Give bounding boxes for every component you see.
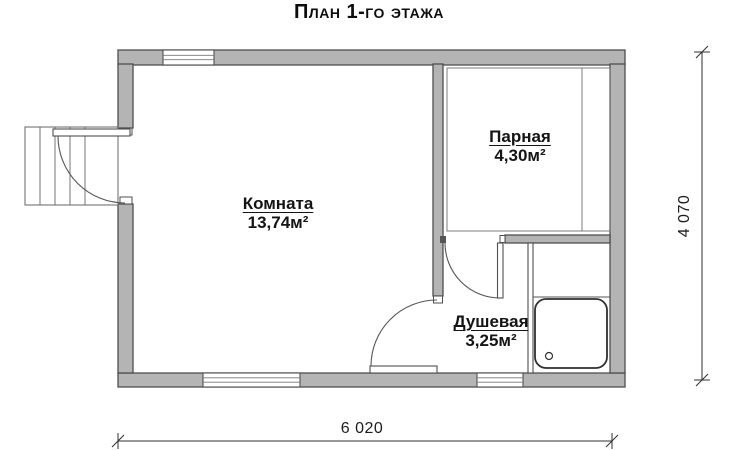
window-bottom-room bbox=[203, 373, 300, 387]
porch-steps bbox=[25, 127, 118, 205]
right-wall bbox=[610, 64, 625, 373]
shower-partition bbox=[528, 243, 533, 373]
window-top bbox=[163, 50, 214, 65]
dimension-width-label: 6 020 bbox=[262, 420, 462, 438]
door-steam-to-shower bbox=[445, 243, 503, 298]
room-area-komnata: 13,74м² bbox=[178, 213, 378, 233]
door-arc bbox=[445, 243, 500, 298]
entrance-door-leaf bbox=[53, 129, 130, 136]
jamb-block bbox=[440, 236, 446, 243]
dimension-height-label: 4 070 bbox=[676, 156, 696, 276]
room-label-komnata: Комната bbox=[178, 194, 378, 214]
bottom-wall bbox=[118, 373, 625, 387]
door-leaf bbox=[498, 243, 504, 298]
floor-plan-page: План 1-го этажа Комната 13,74м² Парная 4… bbox=[0, 0, 738, 450]
room-label-dushevaya: Душевая bbox=[391, 312, 591, 332]
window-bottom-shower bbox=[477, 373, 523, 387]
dimension-line-right bbox=[694, 46, 710, 386]
room-label-parnaya: Парная bbox=[420, 127, 620, 147]
room-area-dushevaya: 3,25м² bbox=[391, 331, 591, 351]
room-area-parnaya: 4,30м² bbox=[420, 146, 620, 166]
page-title: План 1-го этажа bbox=[0, 1, 738, 24]
interior-wall-vertical bbox=[433, 64, 443, 296]
shower-enclosure bbox=[528, 243, 610, 373]
door-leaf bbox=[370, 366, 437, 373]
left-wall-upper bbox=[118, 64, 133, 128]
left-wall-lower bbox=[118, 204, 133, 373]
shower-drain bbox=[546, 353, 553, 360]
interior-wall-horizontal bbox=[505, 235, 610, 243]
